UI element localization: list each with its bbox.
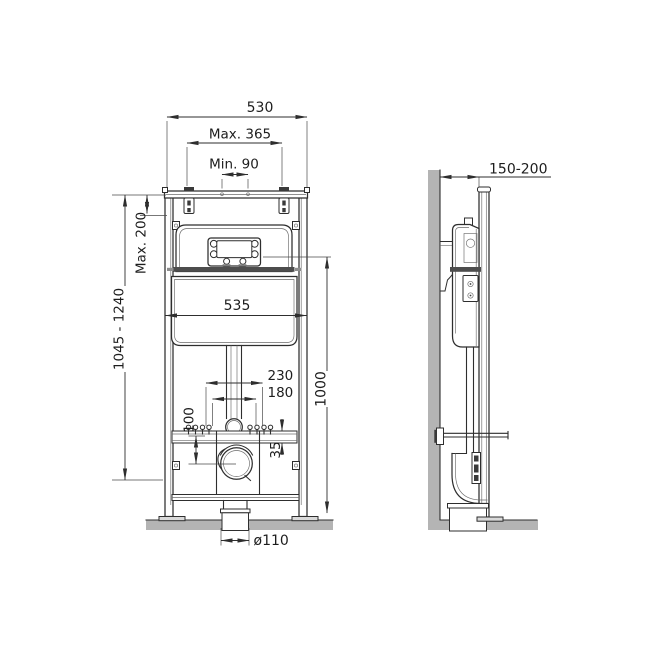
- dim-top-adjust-max: Max. 200: [134, 212, 150, 274]
- dim-panel-center-height: 1000: [314, 371, 330, 407]
- outlet-socket: [221, 501, 251, 531]
- cistern: [167, 225, 302, 346]
- dim-rail-profile-height: 35: [268, 441, 284, 458]
- front-view: 530 Max. 365 Min. 90 Max. 200 1045 - 124…: [112, 100, 334, 549]
- shelf-band-side: [450, 267, 481, 272]
- hanger-bracket-right: [279, 198, 289, 214]
- wall-band: [428, 170, 440, 530]
- dim-hanger-spacing-max: Max. 365: [209, 127, 271, 143]
- dim-outlet-diameter: ø110: [254, 533, 289, 549]
- technical-drawing-page: 530 Max. 365 Min. 90 Max. 200 1045 - 124…: [0, 0, 650, 650]
- access-panel: [208, 238, 261, 267]
- dim-rail-to-outlet: 100: [182, 407, 198, 433]
- dimensions-side: 150-200: [440, 162, 551, 188]
- mounting-rod: [434, 428, 508, 445]
- dim-overall-width: 530: [247, 100, 274, 116]
- dim-studs-outer: 230: [268, 368, 294, 384]
- dim-wall-clearance: 150-200: [489, 162, 548, 178]
- wc-frame-dimensional-drawing: 530 Max. 365 Min. 90 Max. 200 1045 - 124…: [0, 0, 650, 650]
- foot-plate-side: [477, 517, 503, 521]
- dim-frame-height-range: 1045 - 1240: [112, 288, 128, 370]
- foot-plate-right: [292, 517, 318, 521]
- side-view: 150-200: [428, 162, 551, 532]
- hanger-bracket-left: [184, 198, 194, 214]
- dim-studs-inner: 180: [268, 385, 294, 401]
- flush-pipe: [226, 346, 243, 436]
- shelf-band: [174, 267, 295, 272]
- dim-cistern-width: 535: [224, 298, 251, 314]
- cistern-profile: [450, 218, 481, 347]
- foot-plate-left: [159, 517, 185, 521]
- drain-pipe-circle: [221, 448, 253, 480]
- dim-hanger-gap-min: Min. 90: [209, 157, 259, 173]
